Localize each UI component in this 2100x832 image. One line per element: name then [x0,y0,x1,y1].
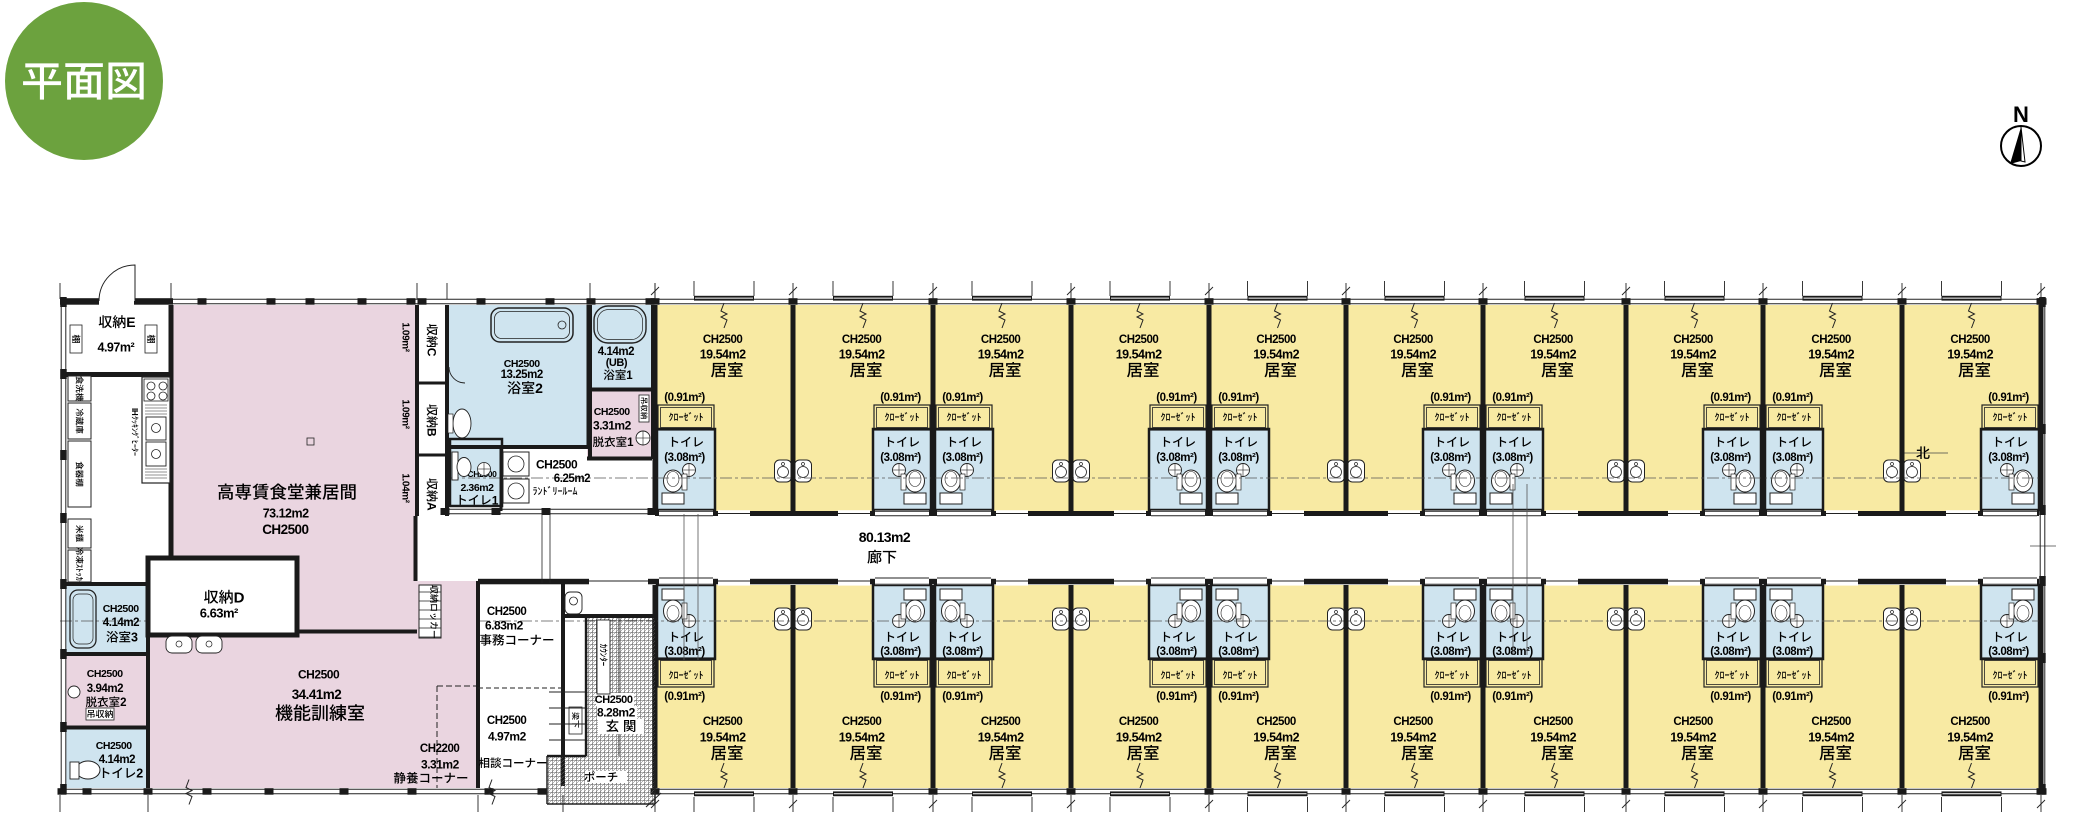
svg-text:(3.08m²): (3.08m²) [664,646,705,658]
svg-text:CH2200: CH2200 [420,743,459,755]
svg-text:CH2500: CH2500 [1393,716,1432,728]
svg-text:19.54m2: 19.54m2 [1808,731,1854,745]
svg-text:(3.08m²): (3.08m²) [1430,452,1471,464]
svg-text:CH2500: CH2500 [1533,716,1572,728]
svg-text:CH2500: CH2500 [981,716,1020,728]
svg-text:19.54m2: 19.54m2 [1808,348,1854,362]
svg-text:8.28m2: 8.28m2 [597,705,636,719]
svg-text:6.83m2: 6.83m2 [485,618,524,632]
svg-text:19.54m2: 19.54m2 [1530,731,1576,745]
svg-text:CH2500: CH2500 [981,334,1020,346]
svg-text:A: A [425,502,439,511]
svg-text:(3.08m²): (3.08m²) [1710,646,1751,658]
svg-text:(0.91m²): (0.91m²) [1492,392,1533,404]
svg-text:(3.08m²): (3.08m²) [1430,646,1471,658]
svg-text:CH2500: CH2500 [298,667,340,681]
svg-text:CH2500: CH2500 [103,603,140,615]
svg-text:(3.08m²): (3.08m²) [1772,646,1813,658]
svg-text:(3.08m²): (3.08m²) [1218,646,1259,658]
svg-text:(3.08m²): (3.08m²) [1988,452,2029,464]
svg-text:CH2500: CH2500 [842,334,881,346]
svg-text:CH2500: CH2500 [1673,334,1712,346]
svg-text:2: 2 [136,767,143,781]
svg-text:19.54m2: 19.54m2 [839,348,885,362]
svg-text:CH2500: CH2500 [595,694,633,706]
svg-text:(0.91m²): (0.91m²) [1218,691,1259,703]
svg-text:(0.91m²): (0.91m²) [1988,392,2029,404]
svg-text:(0.91m²): (0.91m²) [942,392,983,404]
svg-text:CH2500: CH2500 [1950,334,1989,346]
svg-text:3.31m2: 3.31m2 [593,418,632,432]
svg-text:73.12m2: 73.12m2 [263,507,309,521]
svg-text:(0.91m²): (0.91m²) [880,691,921,703]
svg-text:E: E [126,314,135,330]
svg-text:D: D [234,589,245,606]
svg-text:1.09m²: 1.09m² [399,322,410,352]
svg-text:(0.91m²): (0.91m²) [1710,392,1751,404]
svg-text:(UB): (UB) [606,357,628,369]
svg-text:CH2500: CH2500 [1533,334,1572,346]
svg-text:(3.08m²): (3.08m²) [1492,452,1533,464]
svg-text:(3.08m²): (3.08m²) [942,452,983,464]
svg-text:19.54m2: 19.54m2 [1253,348,1299,362]
svg-text:(3.08m²): (3.08m²) [1156,646,1197,658]
svg-text:34.41m2: 34.41m2 [292,687,342,702]
svg-text:4.14m2: 4.14m2 [99,754,135,766]
svg-text:(3.08m²): (3.08m²) [1156,452,1197,464]
svg-text:CH2500: CH2500 [96,740,133,752]
svg-text:19.54m2: 19.54m2 [700,731,746,745]
svg-text:C: C [425,348,439,357]
svg-text:CH2500: CH2500 [487,715,526,727]
svg-text:19.54m2: 19.54m2 [1670,731,1716,745]
svg-text:(0.91m²): (0.91m²) [1156,392,1197,404]
svg-text:(0.91m²): (0.91m²) [664,392,705,404]
svg-text:19.54m2: 19.54m2 [978,731,1024,745]
svg-text:(3.08m²): (3.08m²) [942,646,983,658]
svg-text:B: B [425,428,439,437]
svg-text:3: 3 [131,631,138,645]
svg-text:19.54m2: 19.54m2 [1116,731,1162,745]
svg-text:CH2500: CH2500 [1119,334,1158,346]
svg-text:(3.08m²): (3.08m²) [1218,452,1259,464]
svg-text:(0.91m²): (0.91m²) [1156,691,1197,703]
svg-text:80.13m2: 80.13m2 [859,529,911,545]
svg-text:IH: IH [130,408,139,416]
svg-text:CH2500: CH2500 [87,668,124,680]
svg-text:(0.91m²): (0.91m²) [1710,691,1751,703]
svg-text:19.54m2: 19.54m2 [839,731,885,745]
svg-text:CH2500: CH2500 [487,606,526,618]
svg-text:(3.08m²): (3.08m²) [1710,452,1751,464]
svg-text:CH2500: CH2500 [703,334,742,346]
svg-text:CH2500: CH2500 [1950,716,1989,728]
svg-text:(0.91m²): (0.91m²) [1430,691,1471,703]
svg-text:4.14m2: 4.14m2 [103,617,139,629]
svg-text:(0.91m²): (0.91m²) [1430,392,1471,404]
svg-text:19.54m2: 19.54m2 [700,348,746,362]
svg-text:CH2500: CH2500 [1811,334,1850,346]
svg-text:(3.08m²): (3.08m²) [1772,452,1813,464]
svg-text:19.54m2: 19.54m2 [1530,348,1576,362]
svg-text:19.54m2: 19.54m2 [1947,348,1993,362]
svg-text:CH2500: CH2500 [1256,334,1295,346]
svg-text:(3.08m²): (3.08m²) [664,452,705,464]
svg-text:1.09m²: 1.09m² [399,399,410,429]
svg-text:(0.91m²): (0.91m²) [664,691,705,703]
svg-text:(3.08m²): (3.08m²) [880,646,921,658]
svg-text:4.97m²: 4.97m² [98,341,135,355]
svg-text:(0.91m²): (0.91m²) [942,691,983,703]
svg-text:CH2500: CH2500 [262,522,308,537]
svg-text:(0.91m²): (0.91m²) [1988,691,2029,703]
svg-text:(0.91m²): (0.91m²) [1218,392,1259,404]
svg-text:2.36m2: 2.36m2 [461,482,495,494]
svg-text:(0.91m²): (0.91m²) [880,392,921,404]
svg-text:19.54m2: 19.54m2 [1390,348,1436,362]
svg-text:CH2500: CH2500 [1256,716,1295,728]
svg-text:CH2500: CH2500 [1811,716,1850,728]
svg-text:(0.91m²): (0.91m²) [1492,691,1533,703]
svg-text:1: 1 [492,493,499,507]
svg-text:1.04m²: 1.04m² [399,473,410,503]
svg-text:CH2500: CH2500 [1119,716,1158,728]
svg-text:(3.08m²): (3.08m²) [1988,646,2029,658]
svg-text:19.54m2: 19.54m2 [1947,731,1993,745]
svg-text:19.54m2: 19.54m2 [1390,731,1436,745]
svg-text:N: N [2013,102,2029,127]
svg-text:19.54m2: 19.54m2 [1670,348,1716,362]
svg-text:(0.91m²): (0.91m²) [1772,691,1813,703]
svg-text:4.97m2: 4.97m2 [488,729,527,743]
svg-text:CH2500: CH2500 [536,457,578,471]
svg-text:CH2500: CH2500 [842,716,881,728]
svg-text:19.54m2: 19.54m2 [1253,731,1299,745]
svg-text:CH2500: CH2500 [594,406,631,418]
svg-text:19.54m2: 19.54m2 [1116,348,1162,362]
svg-text:6.63m²: 6.63m² [200,606,239,621]
svg-text:2: 2 [535,380,543,396]
svg-text:2: 2 [120,697,126,709]
svg-text:3.94m2: 3.94m2 [87,683,123,695]
svg-text:CH2500: CH2500 [504,358,541,370]
svg-text:19.54m2: 19.54m2 [978,348,1024,362]
svg-text:(3.08m²): (3.08m²) [880,452,921,464]
svg-text:CH2500: CH2500 [703,716,742,728]
svg-text:(0.91m²): (0.91m²) [1772,392,1813,404]
svg-text:CH2500: CH2500 [1673,716,1712,728]
svg-text:6.25m2: 6.25m2 [554,473,590,485]
svg-text:3.31m2: 3.31m2 [421,757,460,771]
svg-text:CH2500: CH2500 [1393,334,1432,346]
